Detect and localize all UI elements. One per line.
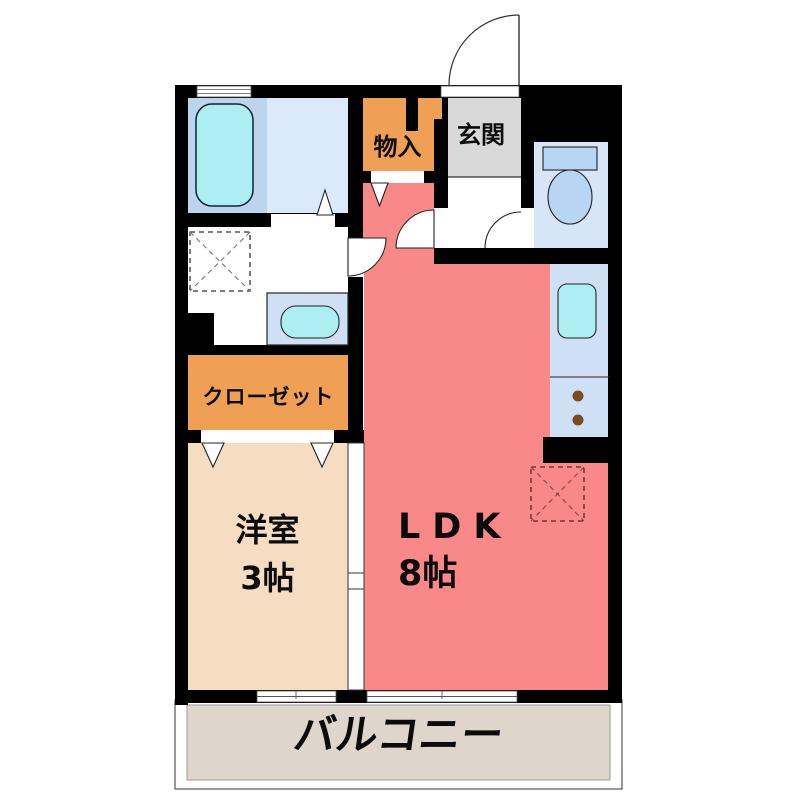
floorplan: 物入 玄関 クローゼット 洋室 3帖 LDK 8帖 バルコニー bbox=[0, 0, 800, 800]
sliding-door-western-ldk bbox=[348, 443, 364, 690]
toilet-door-gap bbox=[521, 208, 534, 248]
western-room-name: 洋室 bbox=[187, 506, 348, 554]
ldk-area-mid bbox=[364, 262, 550, 463]
entrance-door-swing bbox=[449, 15, 519, 85]
wall-right bbox=[608, 85, 622, 703]
entrance-label: 玄関 bbox=[441, 122, 521, 148]
stove-burner-icon bbox=[573, 391, 584, 402]
ldk-door-gap bbox=[434, 208, 448, 248]
wall-top-right-block bbox=[521, 85, 622, 142]
kitchen-sink-icon bbox=[558, 284, 596, 338]
wall-above-closet bbox=[182, 345, 350, 355]
bathtub-icon bbox=[196, 104, 253, 206]
wall-left bbox=[175, 85, 188, 705]
balcony-label: バルコニー bbox=[184, 712, 613, 758]
closet-opening bbox=[201, 430, 334, 443]
ldk-name: LDK bbox=[398, 504, 578, 551]
closet-label: クローゼット bbox=[189, 386, 348, 409]
dressing-room-area bbox=[267, 98, 350, 215]
bathroom-window bbox=[197, 86, 251, 97]
storage-opening bbox=[371, 171, 424, 183]
storage-nook bbox=[418, 98, 442, 119]
western-room-size: 3帖 bbox=[187, 554, 348, 602]
wall-below-hallway bbox=[434, 248, 622, 264]
wall-below-kitchen bbox=[543, 437, 622, 463]
wall-storage-notch bbox=[406, 98, 418, 131]
western-room-label: 洋室 3帖 bbox=[187, 506, 348, 602]
ldk-size: 8帖 bbox=[398, 551, 578, 598]
wall-washroom-step bbox=[182, 313, 214, 345]
bath-door-opening bbox=[271, 214, 335, 228]
ldk-label: LDK 8帖 bbox=[398, 504, 578, 599]
stove-burner-icon bbox=[573, 415, 584, 426]
washbasin-icon bbox=[267, 293, 348, 345]
floorplan-drawing bbox=[0, 0, 800, 800]
storage-label: 物入 bbox=[361, 134, 434, 160]
entrance-threshold bbox=[441, 86, 519, 97]
